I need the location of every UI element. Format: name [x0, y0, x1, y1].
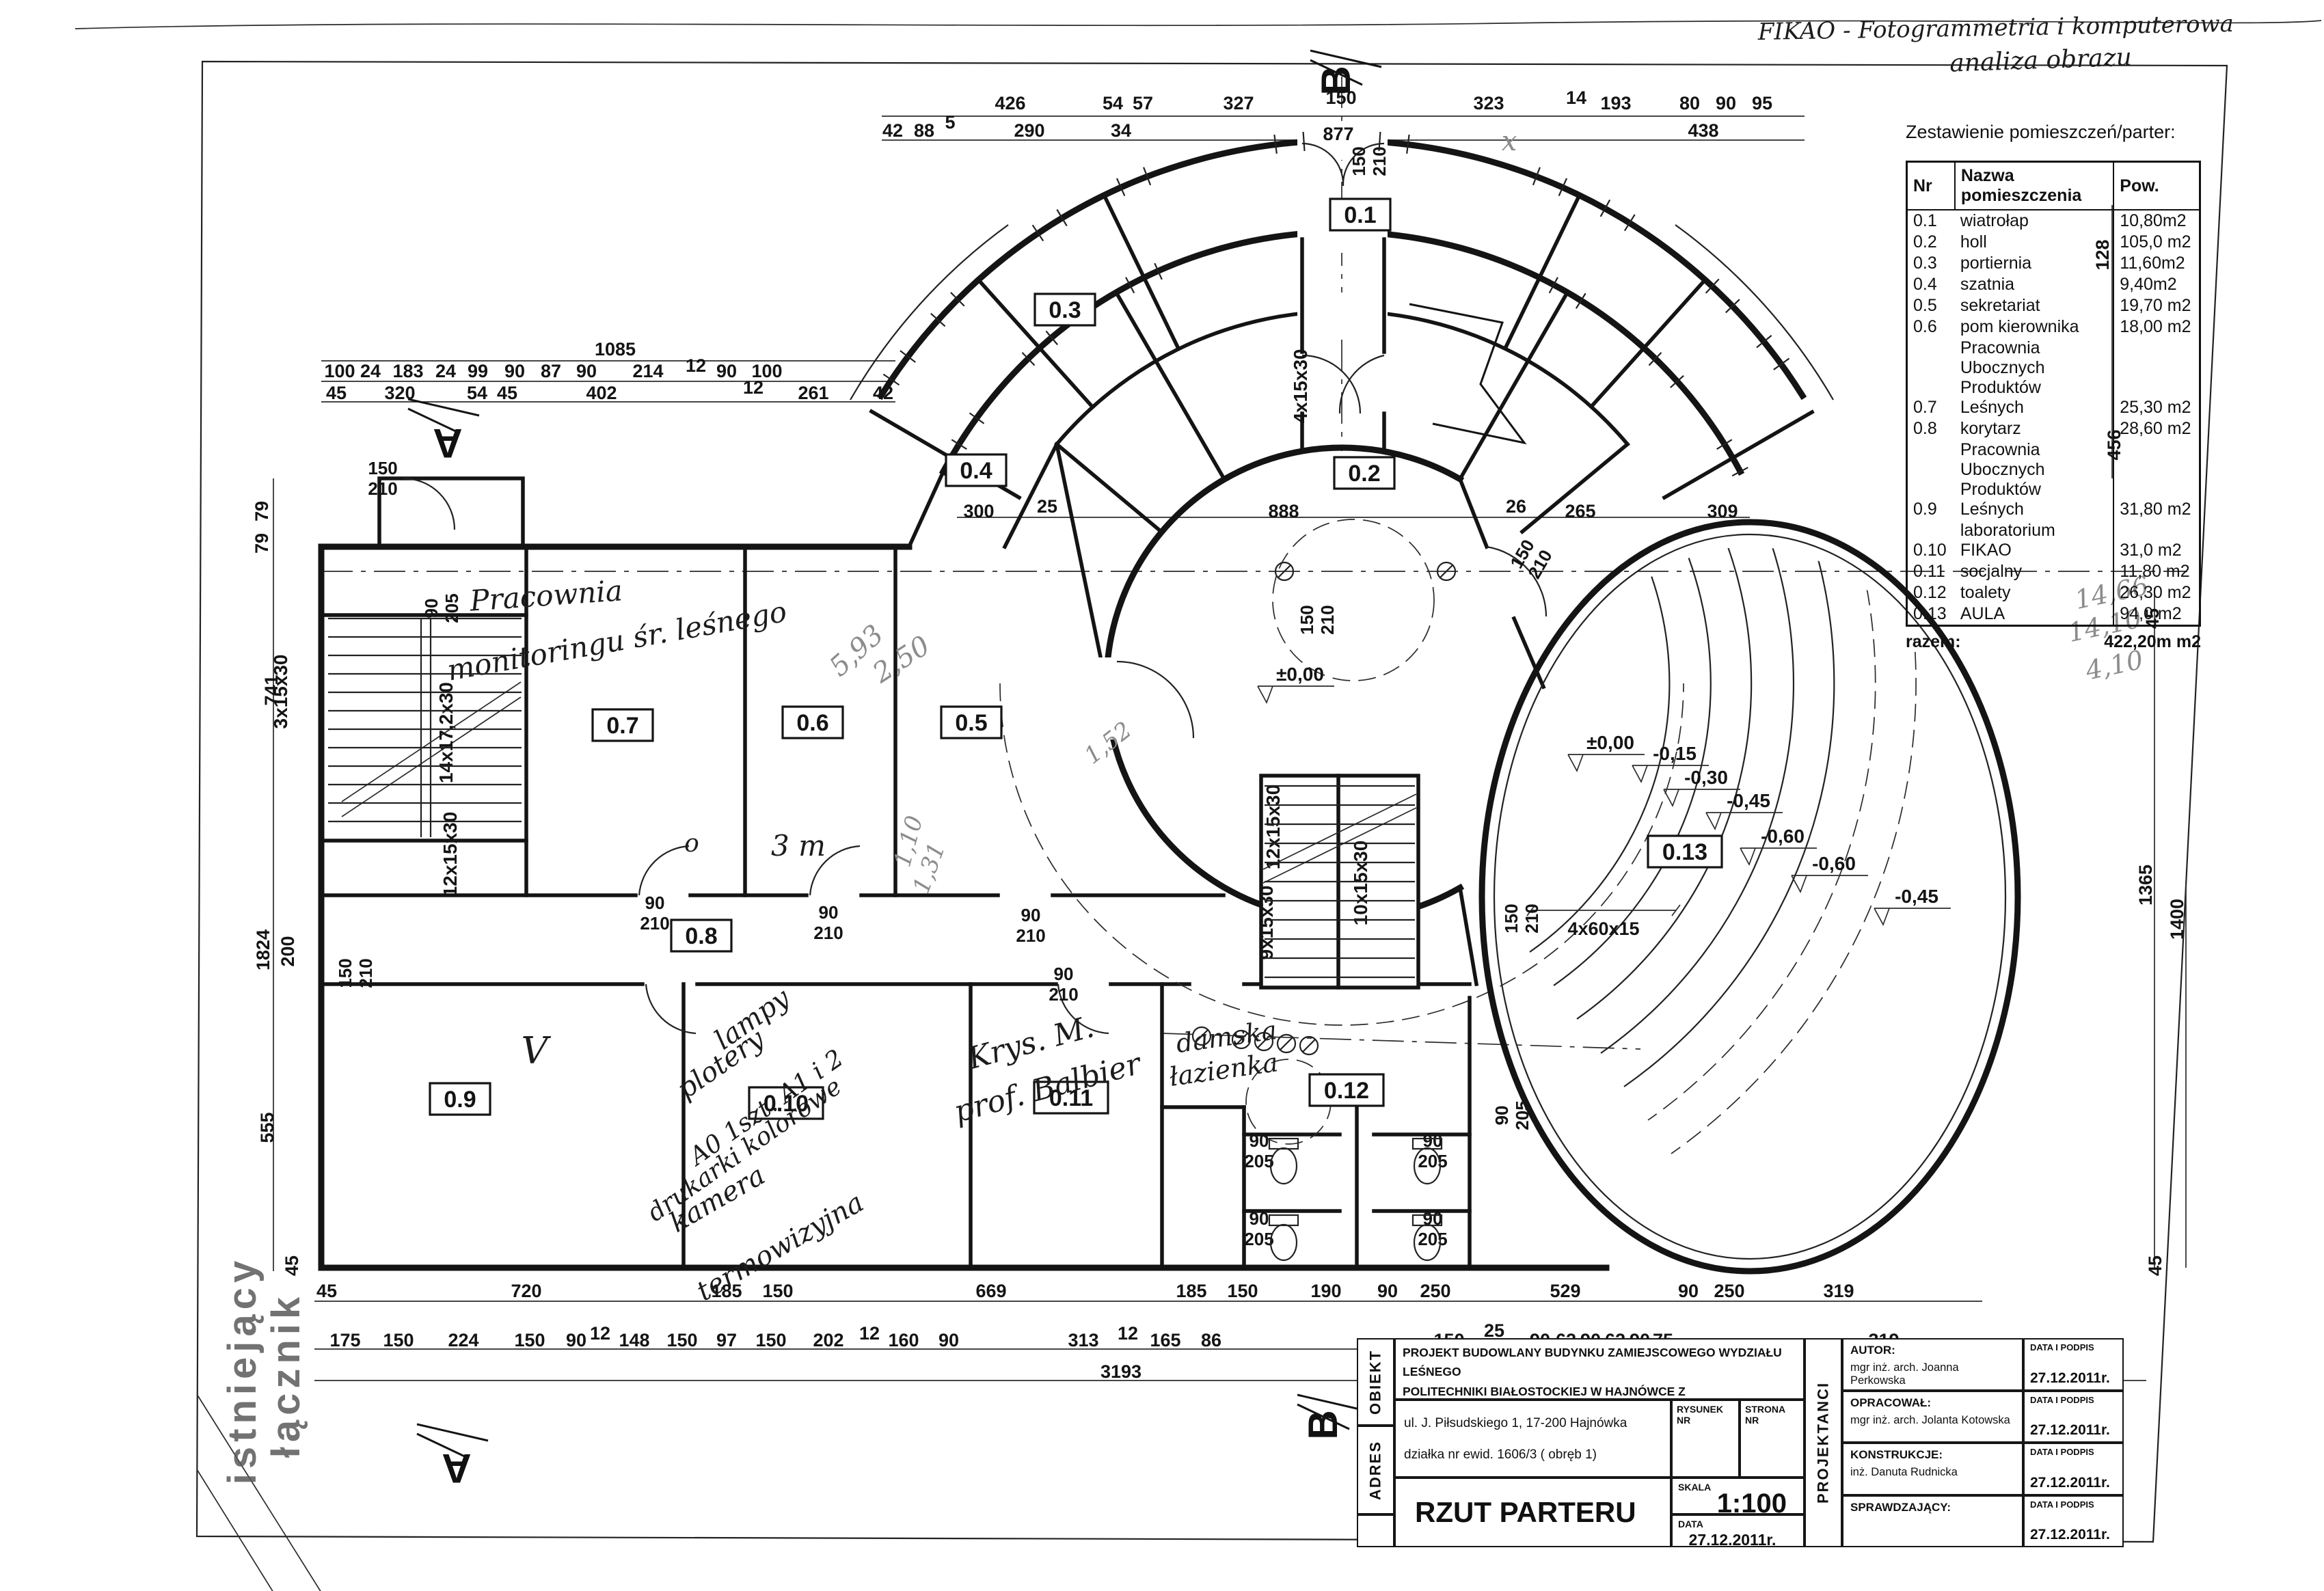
stair-label: 4x15x30 [1290, 349, 1311, 423]
door-size-label: 90210 [1049, 964, 1078, 1005]
dimension-label: 45 [282, 1255, 302, 1276]
svg-text:150: 150 [1297, 605, 1317, 634]
door-size-label: 90210 [640, 893, 669, 934]
svg-text:210: 210 [1016, 925, 1045, 946]
dimension-label: 45 [2145, 1255, 2165, 1276]
dimension-label: 79 [252, 533, 272, 554]
pencil-note: x [1502, 126, 1517, 157]
door-size-label: 150210 [368, 458, 397, 499]
projektanci-label: PROJEKTANCI [1805, 1338, 1842, 1547]
dimension-label: 54 [1103, 93, 1123, 113]
dimension-label: 86 [1201, 1330, 1221, 1350]
dimension-label: 319 [1823, 1281, 1854, 1301]
dimension-label: 323 [1473, 93, 1504, 113]
scale-cell: SKALA 1:100 [1671, 1478, 1805, 1514]
dimension-label: 224 [448, 1330, 478, 1350]
svg-text:205: 205 [1244, 1151, 1273, 1171]
stair-label: 3x15x30 [270, 654, 291, 729]
svg-text:90: 90 [645, 893, 665, 913]
stair-label: 12x15x30 [440, 812, 461, 897]
dimension-label: 150 [514, 1330, 545, 1350]
dimension-label: 12 [686, 355, 706, 376]
dimension-label: 90 [1716, 93, 1736, 113]
svg-text:210: 210 [368, 478, 397, 499]
toilet-fixture [1271, 1225, 1297, 1260]
dimension-label: 80 [1679, 93, 1700, 113]
dimension-label: 150 [666, 1330, 697, 1350]
dimension-label: 90 [566, 1330, 586, 1350]
stamp-note: łącznik [264, 1292, 308, 1458]
obiekt-label: OBIEKT [1357, 1338, 1394, 1426]
dimension-label: 183 [392, 361, 423, 381]
dimension-label: 877 [1323, 124, 1353, 144]
dimension-label: 1365 [2135, 865, 2156, 906]
room-tag: 0.1 [1330, 199, 1390, 230]
dimension-label: 150 [1227, 1281, 1258, 1301]
svg-text:205: 205 [1418, 1151, 1447, 1171]
table-row: 0.11socjalny11,80 m2 [1907, 561, 2200, 582]
dimension-label: 42 [873, 383, 893, 403]
room-tag: 0.9 [430, 1083, 490, 1115]
dimension-label: 90 [1678, 1281, 1699, 1301]
svg-text:0.9: 0.9 [444, 1087, 476, 1113]
dimension-label: 34 [1111, 120, 1131, 141]
designer-row: KONSTRUKCJE:inż. Danuta RudnickaDATA I P… [1842, 1443, 2124, 1495]
svg-text:0.13: 0.13 [1662, 839, 1707, 865]
table-row: 0.7Pracownia Ubocznych Produktów Leśnych… [1907, 338, 2200, 418]
dimension-label: 90 [1377, 1281, 1398, 1301]
toilet-fixture [1271, 1148, 1297, 1184]
table-row: 0.3portiernia11,60m2 [1907, 253, 2200, 274]
people-rows: AUTOR:mgr inż. arch. Joanna PerkowskaDAT… [1842, 1338, 2124, 1547]
dimension-label: 165 [1150, 1330, 1180, 1350]
level-mark: -0,60 [1761, 826, 1805, 847]
dimension-label: 90 [576, 361, 597, 381]
svg-text:90: 90 [1491, 1106, 1512, 1126]
dimension-label: 99 [468, 361, 488, 381]
dimension-label: 3193 [1100, 1361, 1141, 1382]
dimension-label: 24 [435, 361, 456, 381]
handwritten-note: analiza obrazu [1949, 43, 2133, 77]
empty-cell [1357, 1514, 1394, 1547]
handwritten-note: 3 m [771, 829, 826, 862]
svg-text:0.2: 0.2 [1348, 461, 1380, 487]
svg-text:90: 90 [1021, 905, 1041, 925]
table-row: 0.4szatnia9,40m2 [1907, 274, 2200, 295]
handwritten-note: drukarki kolorowe [643, 1072, 847, 1227]
svg-text:0.1: 0.1 [1344, 202, 1376, 228]
dimension-label: 90 [938, 1330, 959, 1350]
date-label: DATA [1678, 1519, 1703, 1529]
dimension-label: 888 [1268, 501, 1299, 521]
dimension-label: 150 [755, 1330, 786, 1350]
dimension-label: 150 [383, 1330, 414, 1350]
dimension-label: 250 [1420, 1281, 1450, 1301]
room-schedule-table: Nr Nazwa pomieszczenia Pow. 0.1wiatrołap… [1906, 161, 2201, 627]
dimension-label: 54 [467, 383, 487, 403]
door-size-label: 150210 [335, 958, 376, 988]
drawing-number-cell: RYSUNEK NR [1671, 1400, 1740, 1478]
stair-label: 14x17,2x30 [435, 682, 457, 783]
table-row: 0.2holl105,0 m2 [1907, 232, 2200, 253]
dimension-label: 95 [1752, 93, 1772, 113]
date-value: 27.12.2011r. [1678, 1531, 1798, 1549]
total-label: razem: [1906, 632, 1961, 652]
svg-text:150: 150 [335, 958, 355, 988]
level-mark: ±0,00 [1276, 664, 1324, 685]
svg-text:0.12: 0.12 [1324, 1078, 1369, 1104]
col-header-area: Pow. [2113, 162, 2200, 210]
dimension-label: 87 [541, 361, 561, 381]
handwritten-note: Pracownia [468, 573, 624, 618]
dimension-label: 45 [316, 1281, 337, 1301]
stamp-note: istniejący [220, 1256, 265, 1484]
dimension-label: 150 [762, 1281, 793, 1301]
svg-text:210: 210 [1317, 605, 1338, 634]
handwritten-note: o [684, 830, 699, 858]
col-header-name: Nazwa pomieszczenia [1955, 162, 2113, 210]
svg-text:0.5: 0.5 [955, 710, 987, 736]
dimension-label: 148 [619, 1330, 649, 1350]
col-header-nr: Nr [1907, 162, 1955, 210]
dimension-label: 309 [1707, 501, 1738, 521]
dimension-label: 14 [1566, 87, 1586, 108]
table-row: 0.9Pracownia Ubocznych Produktów Leśnych… [1907, 439, 2200, 520]
table-row: 0.6pom kierownika18,00 m2 [1907, 316, 2200, 338]
dimension-label: 555 [257, 1112, 278, 1143]
door-size-label: 150210 [1297, 605, 1338, 634]
dimension-label: 402 [586, 383, 617, 403]
room-tag: 0.12 [1310, 1074, 1383, 1106]
dimension-label: 12 [1118, 1323, 1138, 1344]
dimension-label: 720 [511, 1281, 541, 1301]
level-mark: -0,45 [1727, 790, 1770, 811]
designer-row: OPRACOWAŁ:mgr inż. arch. Jolanta Kotowsk… [1842, 1391, 2124, 1443]
room-tag: 0.8 [671, 920, 731, 951]
room-tag: 0.3 [1035, 294, 1095, 325]
svg-text:210: 210 [1049, 984, 1078, 1005]
dimension-label: 1400 [2167, 899, 2187, 940]
door-size-label: 90205 [1418, 1130, 1447, 1171]
dimension-label: 25 [1037, 496, 1057, 517]
svg-text:205: 205 [1244, 1229, 1273, 1249]
level-mark: -0,45 [1895, 886, 1938, 907]
level-mark: -0,30 [1684, 767, 1728, 788]
svg-text:90: 90 [1249, 1130, 1269, 1151]
svg-text:210: 210 [1522, 903, 1542, 933]
dimension-label: 265 [1565, 501, 1595, 521]
scanned-drawing-sheet: 4265457327150323141938090954288529034877… [0, 0, 2324, 1591]
dimension-label: 88 [914, 120, 934, 141]
stair-label: 9x15x30 [1256, 885, 1277, 960]
handwritten-note: FIKAO - Fotogrammetria i komputerowa [1757, 10, 2234, 46]
door-size-label: 150210 [1501, 903, 1542, 933]
dimension-label: 45 [497, 383, 517, 403]
svg-text:0.6: 0.6 [796, 710, 828, 736]
svg-text:0.8: 0.8 [685, 923, 717, 949]
door-size-label: 150210 [1349, 146, 1390, 176]
dimension-label: 100 [324, 361, 355, 381]
table-row: 0.1wiatrołap10,80m2 [1907, 210, 2200, 232]
svg-text:90: 90 [1249, 1208, 1269, 1229]
dimension-label: 26 [1506, 496, 1526, 517]
dimension-label: 529 [1550, 1281, 1580, 1301]
dimension-label: 24 [360, 361, 381, 381]
table-row: 0.5sekretariat19,70 m2 [1907, 295, 2200, 316]
dimension-label: 45 [326, 383, 347, 403]
table-row: 0.13AULA94,0 m2 [1907, 603, 2200, 626]
dimension-label: 42 [882, 120, 903, 141]
dimension-label: 202 [813, 1330, 843, 1350]
door-size-label: 90210 [813, 902, 843, 943]
scale-label: SKALA [1678, 1482, 1711, 1493]
dimension-label: 214 [632, 361, 663, 381]
svg-text:205: 205 [1512, 1100, 1532, 1130]
stair-label: 12x15x30 [1262, 785, 1284, 870]
schedule-total-row: razem: 422,20m m2 [1906, 632, 2201, 652]
svg-text:150: 150 [1501, 903, 1522, 933]
svg-text:210: 210 [355, 958, 376, 988]
adres-label: ADRES [1357, 1426, 1394, 1514]
dimension-label: 313 [1068, 1330, 1098, 1350]
dimension-label: 90 [716, 361, 737, 381]
dimension-label: 1085 [595, 339, 636, 359]
designer-row: AUTOR:mgr inż. arch. Joanna PerkowskaDAT… [1842, 1338, 2124, 1391]
handwritten-note: V [522, 1029, 552, 1072]
svg-text:205: 205 [1418, 1229, 1447, 1249]
page-number-cell: STRONA NR [1740, 1400, 1805, 1478]
door-size-label: 90210 [1016, 905, 1045, 946]
table-row: 0.12toalety26,30 m2 [1907, 582, 2200, 603]
dimension-label: 160 [888, 1330, 919, 1350]
svg-text:0.7: 0.7 [606, 713, 638, 739]
dimension-label: 200 [278, 936, 298, 966]
dimension-label: 438 [1688, 120, 1718, 141]
svg-text:90: 90 [1054, 964, 1074, 984]
dimension-label: 193 [1600, 93, 1631, 113]
svg-text:210: 210 [813, 923, 843, 943]
dimension-label: 669 [975, 1281, 1006, 1301]
dimension-label: 426 [995, 93, 1025, 113]
room-tag: 0.5 [941, 707, 1001, 738]
room-tag: 0.13 [1648, 836, 1722, 867]
dimension-label: 327 [1223, 93, 1254, 113]
dimension-label: 12 [859, 1323, 880, 1344]
total-value: 422,20m m2 [2104, 632, 2201, 652]
room-tag: 0.7 [593, 709, 653, 741]
svg-text:210: 210 [640, 913, 669, 934]
project-description: PROJEKT BUDOWLANY BUDYNKU ZAMIEJSCOWEGO … [1394, 1338, 1805, 1400]
stair-label: 10x15x30 [1350, 841, 1371, 926]
svg-text:0.3: 0.3 [1049, 297, 1081, 323]
dimension-label: 190 [1310, 1281, 1341, 1301]
legend-body: 0.1wiatrołap10,80m20.2holl105,0 m20.3por… [1907, 210, 2200, 626]
dimension-label: 90 [504, 361, 525, 381]
svg-text:90: 90 [819, 902, 839, 923]
room-schedule: Zestawienie pomieszczeń/parter: Nr Nazwa… [1906, 122, 2201, 652]
door-size-label: 90205 [1244, 1130, 1273, 1171]
svg-text:0.4: 0.4 [960, 458, 992, 484]
svg-text:150: 150 [1349, 146, 1369, 176]
drawing-title: RZUT PARTERU [1394, 1478, 1671, 1547]
dimension-label: 57 [1133, 93, 1153, 113]
door-size-label: 150210 [1506, 536, 1556, 582]
room-tag: 0.2 [1334, 457, 1394, 489]
dimension-label: 4x60x15 [1567, 919, 1639, 939]
dimension-label: 97 [716, 1330, 737, 1350]
level-mark: -0,60 [1812, 853, 1856, 874]
room-schedule-title: Zestawienie pomieszczeń/parter: [1906, 122, 2201, 143]
dimension-label: 185 [1176, 1281, 1206, 1301]
room-tag: 0.6 [783, 707, 843, 738]
svg-text:150: 150 [368, 458, 397, 478]
dimension-label: 290 [1014, 120, 1044, 141]
date-cell: DATA 27.12.2011r. [1671, 1514, 1805, 1547]
dimension-label: 12 [590, 1323, 610, 1344]
dimension-label: 261 [798, 383, 828, 403]
dimension-label: 1824 [253, 929, 273, 970]
dimension-label: 79 [252, 501, 272, 521]
dimension-label: 300 [963, 501, 994, 521]
door-size-label: 90205 [1491, 1100, 1532, 1130]
address-cell: ul. J. Piłsudskiego 1, 17-200 Hajnówka d… [1394, 1400, 1671, 1478]
svg-text:90: 90 [421, 599, 442, 618]
dimension-label: 175 [329, 1330, 360, 1350]
designer-row: SPRAWDZAJĄCY:DATA I PODPIS27.12.2011r. [1842, 1495, 2124, 1548]
room-tag: 0.4 [946, 454, 1006, 486]
title-block: OBIEKT ADRES PROJEKT BUDOWLANY BUDYNKU Z… [1357, 1338, 2124, 1547]
table-row: 0.8korytarz28,60 m2 [1907, 418, 2200, 439]
table-row: 0.10laboratorium FIKAO31,0 m2 [1907, 520, 2200, 561]
level-mark: ±0,00 [1586, 732, 1634, 753]
level-mark: -0,15 [1653, 743, 1697, 764]
dimension-label: 12 [743, 377, 764, 398]
dimension-label: 250 [1714, 1281, 1744, 1301]
dimension-label: 5 [945, 112, 955, 133]
